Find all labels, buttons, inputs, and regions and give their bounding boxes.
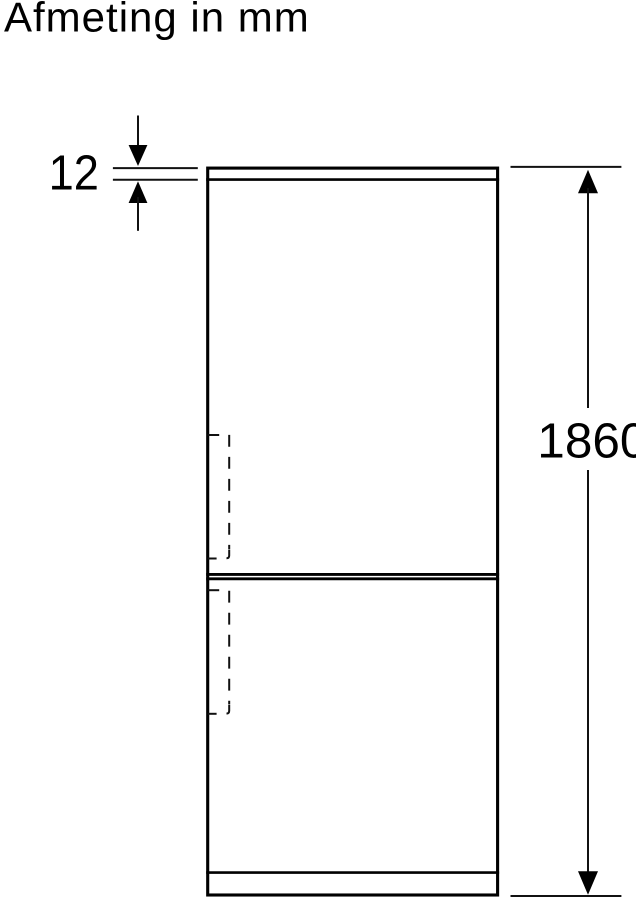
svg-text:12: 12 [49, 145, 99, 200]
svg-text:Afmeting in mm: Afmeting in mm [4, 0, 310, 41]
svg-text:1860: 1860 [537, 414, 636, 469]
